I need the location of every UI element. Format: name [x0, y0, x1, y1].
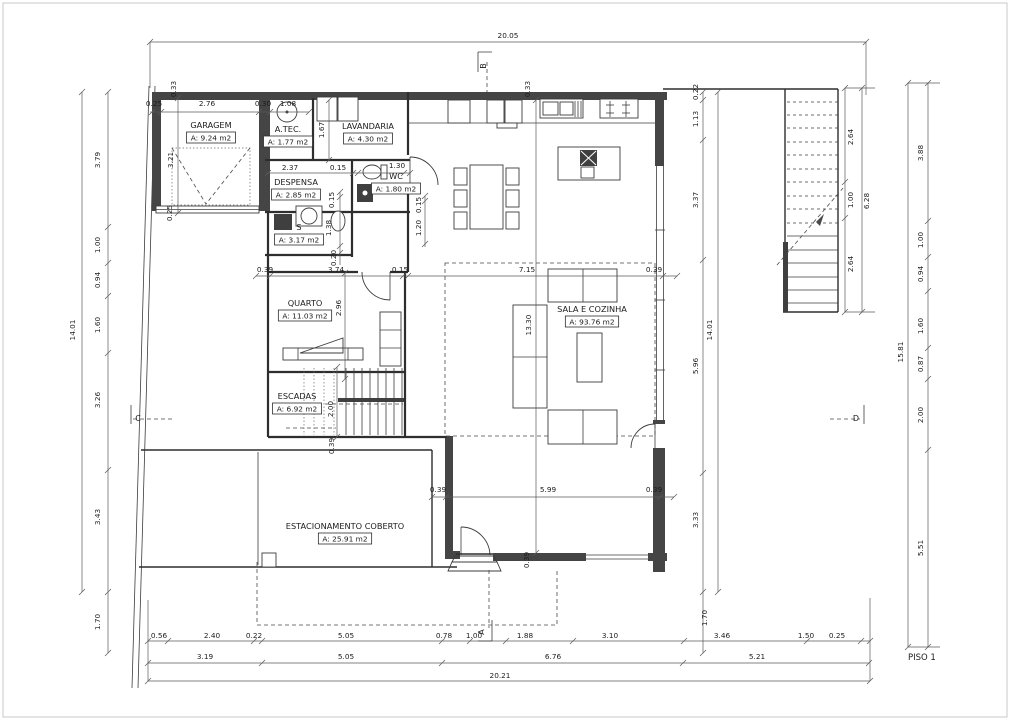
window-south [586, 553, 648, 561]
dimension-label: 20.05 [498, 31, 519, 40]
dimension-label: 0.20 [329, 250, 338, 267]
dimension-label: 1.60 [916, 318, 925, 335]
toilet-icon [363, 165, 381, 179]
room-area-label: A: 4.30 m2 [348, 135, 388, 144]
dimension-label: 5.96 [691, 358, 700, 375]
room-area-label: A: 1.77 m2 [268, 138, 308, 147]
room-name-label: ESTACIONAMENTO COBERTO [286, 521, 404, 531]
dimension-label: 0.39 [522, 552, 531, 569]
dimension-label: 3.37 [691, 192, 700, 209]
dimension-label: 1.70 [93, 614, 102, 631]
dimension-label: 5.21 [749, 652, 765, 661]
hall-door [410, 157, 438, 185]
section-marker-label: A [477, 629, 486, 635]
dimension-label: 1.88 [517, 631, 534, 640]
dimension-label: 5.51 [916, 540, 925, 556]
dimension-label: 14.01 [705, 320, 714, 341]
dimension-label: 1.60 [93, 317, 102, 334]
floor-plan-svg: 20.050.330.330.221.130.252.760.301.081.6… [0, 0, 1010, 720]
room-area-label: A: 6.92 m2 [277, 405, 317, 414]
room-name-label: SALA E COZINHA [557, 304, 627, 314]
room-name-label: DESPENSA [274, 177, 318, 187]
dimension-label: 3.33 [691, 512, 700, 529]
room-area-label: A: 93.76 m2 [569, 318, 614, 327]
dimension-label: 3.26 [93, 392, 102, 409]
dimension-label: 3.46 [714, 631, 731, 640]
dimension-label: 1.13 [691, 111, 700, 128]
section-lines [131, 52, 864, 641]
dimension-label: 0.33 [169, 81, 178, 98]
dimension-label: 3.43 [93, 509, 102, 526]
dimension-label: 1.38 [324, 220, 333, 237]
stove-icon [600, 99, 638, 118]
dimension-label: 0.22 [246, 631, 262, 640]
dimension-label: 3.10 [602, 631, 619, 640]
dimension-label: 5.05 [338, 652, 354, 661]
room-area-label: A: 3.17 m2 [279, 236, 319, 245]
dimension-label: 1.67 [317, 122, 326, 139]
room-name-label: QUARTO [288, 298, 323, 308]
room-name-label: ESCADAS [278, 391, 317, 401]
dimension-label: 0.30 [255, 99, 272, 108]
drawing-title: PISO 1 [908, 653, 936, 663]
room-name-label: GARAGEM [190, 120, 231, 130]
stairs-exterior [663, 89, 843, 312]
dimension-label: 0.33 [523, 81, 532, 98]
dimension-label: 0.87 [916, 356, 925, 373]
dimension-label: 0.25 [829, 631, 845, 640]
wardrobe-icon [380, 312, 401, 366]
room-area-label: A: 2.85 m2 [276, 191, 316, 200]
dimension-label: 0.25 [146, 99, 162, 108]
dimension-label: 5.99 [540, 485, 557, 494]
sanitary-fixtures [274, 206, 345, 231]
dimension-label: 3.74 [328, 265, 345, 274]
dimension-label: 7.15 [519, 265, 535, 274]
dimension-label: 0.22 [691, 84, 700, 100]
site-boundary [132, 86, 155, 688]
dimension-label: 1.00 [916, 232, 925, 249]
dimension-label: 6.76 [545, 652, 562, 661]
dining-table [454, 165, 519, 229]
drawing-sheet: 20.050.330.330.221.130.252.760.301.081.6… [0, 0, 1010, 720]
dimension-label: 1.50 [798, 631, 815, 640]
dimension-label: 2.00 [326, 401, 335, 418]
dimension-label: 14.01 [68, 320, 77, 341]
section-marker-label: D [853, 414, 859, 423]
room-name-label: A.TEC. [275, 124, 302, 134]
room-name-label: LAVANDARIA [342, 121, 394, 131]
dimension-label: 0.15 [392, 265, 408, 274]
kitchen-counter [408, 99, 655, 128]
dimension-label: 2.64 [846, 129, 855, 146]
dimension-label: 0.39 [646, 265, 663, 274]
dimension-label: 0.39 [430, 485, 447, 494]
dimension-label: 0.78 [436, 631, 453, 640]
dimension-label: 1.20 [414, 220, 423, 237]
dimension-label: 0.94 [916, 266, 925, 283]
dimension-label: 0.15 [330, 163, 346, 172]
kitchen-island [558, 147, 620, 180]
dimension-label: 5.05 [338, 631, 354, 640]
labels-layer: 20.050.330.330.221.130.252.760.301.081.6… [68, 31, 925, 680]
dimension-label: 15.81 [896, 342, 905, 363]
dimension-label: 2.76 [199, 99, 216, 108]
room-area-label: A: 11.03 m2 [282, 312, 327, 321]
sofa-set [513, 269, 617, 444]
room-area-label: A: 1.80 m2 [376, 185, 416, 194]
dimension-label: 2.64 [846, 256, 855, 273]
dimension-label: 1.70 [700, 610, 709, 627]
room-name-label: WC [389, 171, 403, 181]
room-name-label: S [296, 222, 301, 232]
dimension-label: 0.39 [646, 485, 663, 494]
dimension-label: 3.19 [197, 652, 214, 661]
toilet-icon [331, 211, 345, 231]
dimension-label: 1.08 [280, 99, 297, 108]
dimension-label: 0.94 [93, 272, 102, 289]
dimension-label: 2.37 [282, 163, 299, 172]
dimension-label: 0.56 [151, 631, 168, 640]
dimension-label: 2.40 [204, 631, 221, 640]
dimension-label: 0.39 [257, 265, 274, 274]
dimension-label: 0.15 [327, 192, 336, 208]
dimension-label: 1.00 [93, 237, 102, 254]
dimension-label: 0.15 [414, 197, 423, 213]
section-marker-label: B [479, 63, 488, 69]
room-area-label: A: 9.24 m2 [191, 134, 231, 143]
section-marker-label: C [135, 414, 141, 423]
dimension-label: 3.21 [166, 152, 175, 168]
room-area-label: A: 25.91 m2 [322, 535, 367, 544]
dimension-label: 1.30 [389, 161, 406, 170]
dimension-label: 0.39 [327, 438, 336, 455]
dimension-label: 1.00 [846, 192, 855, 209]
dimension-label: 0.25 [165, 205, 174, 221]
dimension-label: 3.88 [916, 145, 925, 162]
dimension-label: 13.30 [524, 314, 533, 335]
entrance-door [448, 527, 501, 571]
dimension-label: 2.00 [916, 407, 925, 424]
dimension-label: 6.28 [862, 193, 871, 210]
dimension-label: 3.79 [93, 152, 102, 169]
dimension-label: 20.21 [490, 671, 511, 680]
coffee-table [577, 333, 602, 382]
dimension-label: 2.96 [334, 300, 343, 317]
